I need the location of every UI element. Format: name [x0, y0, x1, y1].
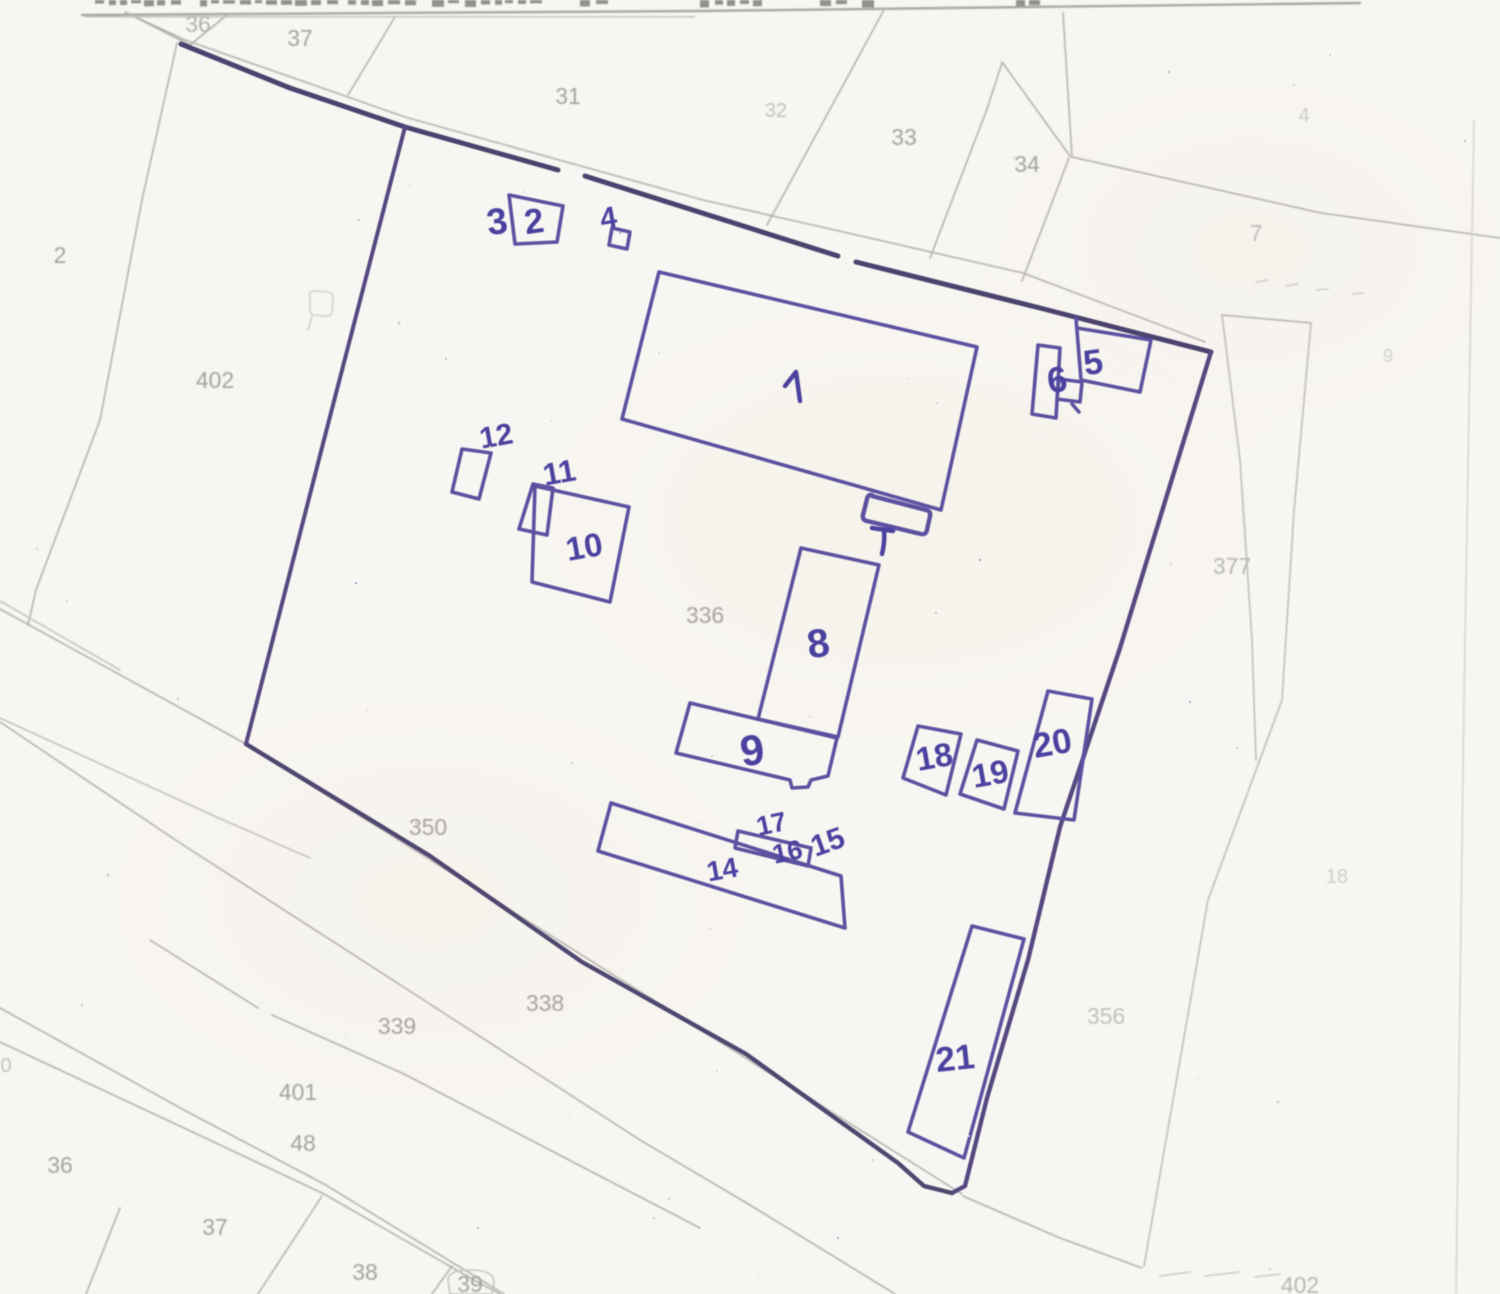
svg-text:16: 16	[770, 834, 806, 870]
svg-text:36: 36	[47, 1152, 73, 1178]
svg-text:336: 336	[686, 602, 724, 628]
svg-text:402: 402	[1281, 1272, 1319, 1294]
svg-text:14: 14	[704, 851, 740, 887]
svg-text:4: 4	[1298, 105, 1309, 127]
svg-text:34: 34	[1014, 151, 1040, 177]
svg-text:39: 39	[457, 1271, 483, 1294]
svg-text:0: 0	[0, 1055, 11, 1077]
svg-text:10: 10	[563, 525, 606, 568]
svg-text:20: 20	[1030, 721, 1075, 766]
svg-text:7: 7	[1250, 220, 1263, 246]
svg-text:338: 338	[526, 990, 564, 1016]
svg-text:32: 32	[765, 100, 787, 122]
svg-text:33: 33	[891, 124, 917, 150]
svg-text:18: 18	[913, 735, 956, 778]
svg-text:17: 17	[754, 806, 790, 842]
svg-text:12: 12	[477, 417, 516, 455]
svg-text:19: 19	[969, 752, 1012, 795]
svg-text:377: 377	[1213, 553, 1251, 579]
svg-text:402: 402	[196, 367, 234, 393]
svg-text:21: 21	[934, 1037, 977, 1080]
svg-text:2: 2	[54, 242, 67, 268]
svg-text:37: 37	[287, 25, 313, 51]
svg-text:9: 9	[1383, 346, 1393, 366]
svg-text:339: 339	[378, 1013, 416, 1039]
svg-text:31: 31	[555, 83, 581, 109]
svg-text:11: 11	[540, 452, 578, 492]
svg-text:356: 356	[1087, 1003, 1125, 1029]
svg-text:38: 38	[352, 1259, 378, 1285]
svg-text:18: 18	[1326, 866, 1348, 888]
svg-text:401: 401	[279, 1079, 317, 1105]
svg-text:48: 48	[290, 1130, 316, 1156]
svg-text:36: 36	[185, 11, 211, 37]
svg-text:350: 350	[409, 814, 447, 840]
svg-text:37: 37	[202, 1214, 228, 1240]
